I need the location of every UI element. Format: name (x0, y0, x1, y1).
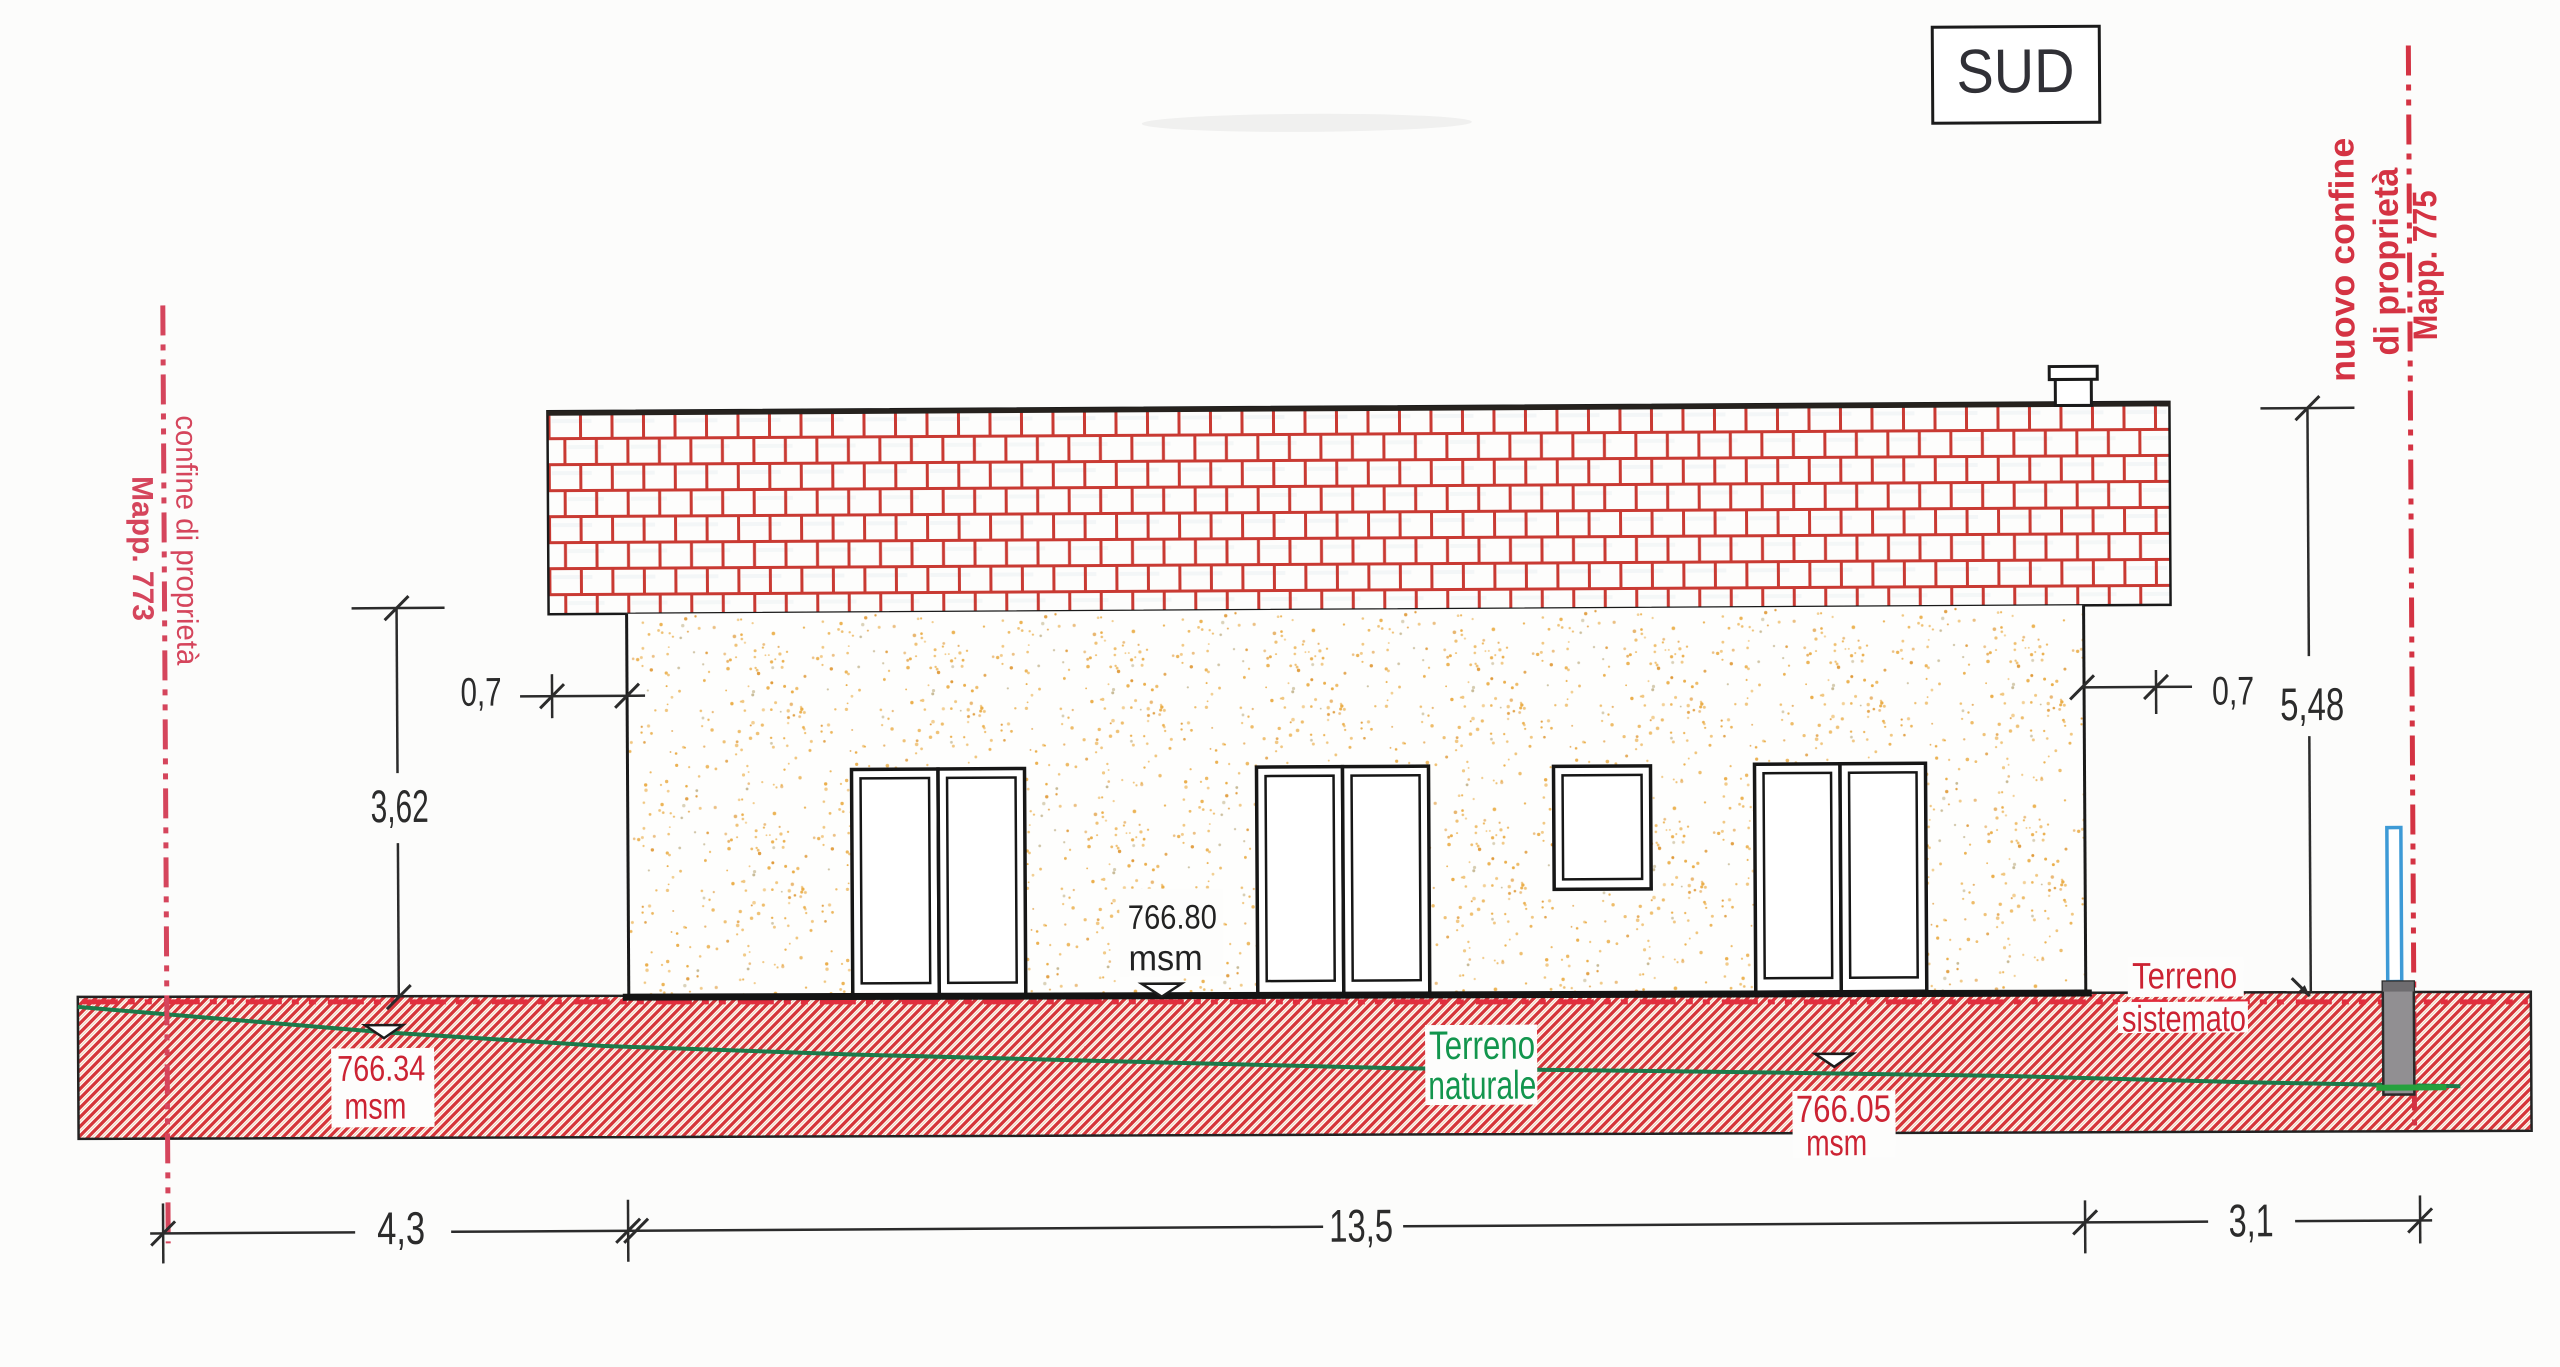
svg-text:5,48: 5,48 (2280, 678, 2344, 730)
svg-text:naturale: naturale (1428, 1064, 1536, 1109)
svg-text:msm: msm (1806, 1122, 1867, 1163)
svg-text:SUD: SUD (1956, 37, 2074, 107)
svg-text:nuovo confine: nuovo confine (2322, 138, 2362, 382)
svg-text:Terreno: Terreno (2132, 955, 2237, 997)
svg-text:766.80: 766.80 (1128, 898, 1217, 937)
svg-text:3,1: 3,1 (2228, 1194, 2273, 1246)
svg-text:13,5: 13,5 (1329, 1199, 1393, 1251)
svg-text:4,3: 4,3 (377, 1202, 425, 1254)
svg-text:Mapp. 773: Mapp. 773 (125, 476, 159, 621)
svg-text:0,7: 0,7 (2212, 669, 2254, 713)
svg-text:confine di proprietà: confine di proprietà (169, 415, 203, 665)
svg-text:msm: msm (344, 1086, 406, 1127)
svg-text:766.34: 766.34 (337, 1047, 425, 1089)
svg-text:Terreno: Terreno (1429, 1024, 1535, 1069)
svg-text:sistemato: sistemato (2122, 998, 2246, 1040)
svg-text:3,62: 3,62 (371, 780, 429, 832)
svg-text:di proprietà: di proprietà (2367, 167, 2407, 356)
svg-text:0,7: 0,7 (460, 670, 501, 714)
svg-text:msm: msm (1128, 937, 1202, 978)
